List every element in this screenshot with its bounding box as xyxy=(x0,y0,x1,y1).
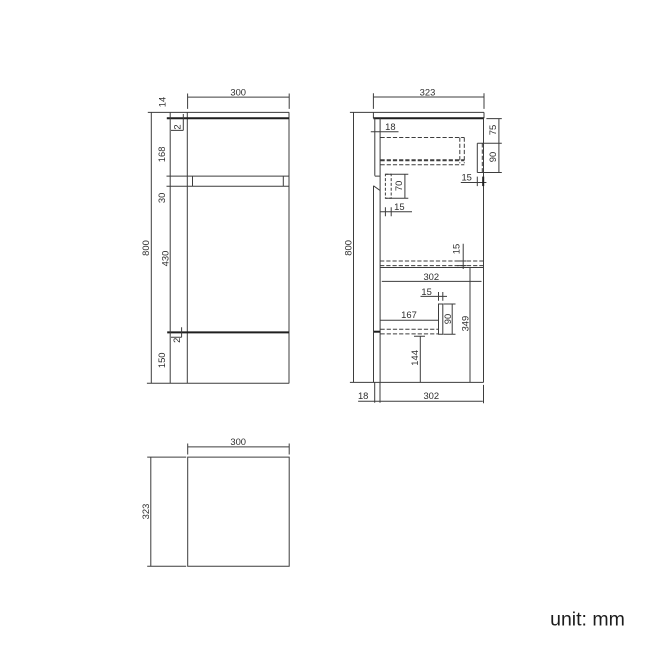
svg-text:15: 15 xyxy=(394,201,404,212)
svg-text:unit: mm: unit: mm xyxy=(550,609,625,631)
svg-text:70: 70 xyxy=(393,181,404,191)
svg-text:800: 800 xyxy=(140,240,151,256)
svg-text:2: 2 xyxy=(171,338,182,343)
svg-text:349: 349 xyxy=(459,316,470,332)
svg-text:90: 90 xyxy=(442,314,453,324)
svg-text:323: 323 xyxy=(420,86,436,97)
svg-text:15: 15 xyxy=(461,172,471,183)
svg-text:15: 15 xyxy=(451,244,462,254)
svg-text:90: 90 xyxy=(487,152,498,162)
svg-text:15: 15 xyxy=(421,286,431,297)
svg-text:302: 302 xyxy=(423,390,439,401)
svg-text:300: 300 xyxy=(230,86,246,97)
svg-text:430: 430 xyxy=(160,251,171,267)
svg-text:800: 800 xyxy=(342,240,353,256)
svg-text:168: 168 xyxy=(156,147,167,163)
svg-text:2: 2 xyxy=(171,124,182,129)
svg-text:167: 167 xyxy=(401,309,417,320)
svg-text:18: 18 xyxy=(358,390,368,401)
svg-text:18: 18 xyxy=(385,121,395,132)
svg-text:144: 144 xyxy=(409,350,420,366)
svg-text:323: 323 xyxy=(140,504,151,520)
svg-text:30: 30 xyxy=(156,193,167,203)
svg-text:150: 150 xyxy=(156,352,167,368)
svg-text:300: 300 xyxy=(230,436,246,447)
svg-text:302: 302 xyxy=(423,271,439,282)
svg-text:75: 75 xyxy=(487,125,498,135)
svg-text:14: 14 xyxy=(157,97,168,107)
